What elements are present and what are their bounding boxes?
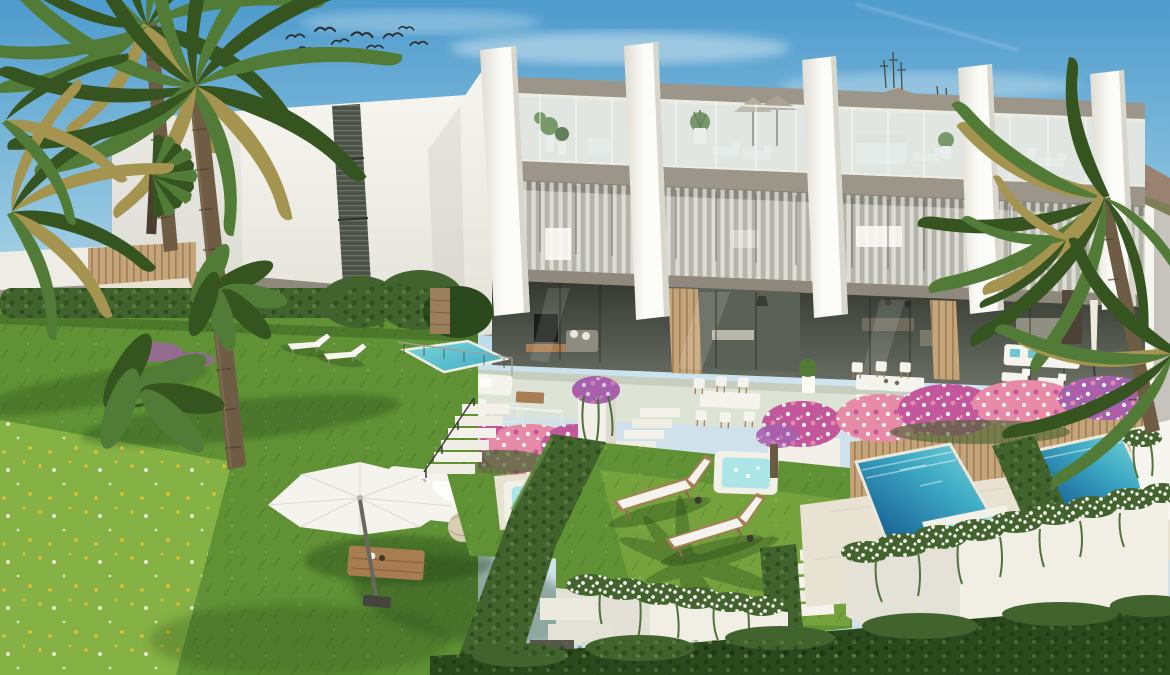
coffee-table (347, 545, 426, 580)
outdoor-shower-post (770, 444, 778, 478)
architectural-render (0, 0, 1170, 675)
pendant-lamp (756, 296, 768, 306)
render-canvas (0, 0, 1170, 675)
stone-pillar (430, 288, 450, 334)
